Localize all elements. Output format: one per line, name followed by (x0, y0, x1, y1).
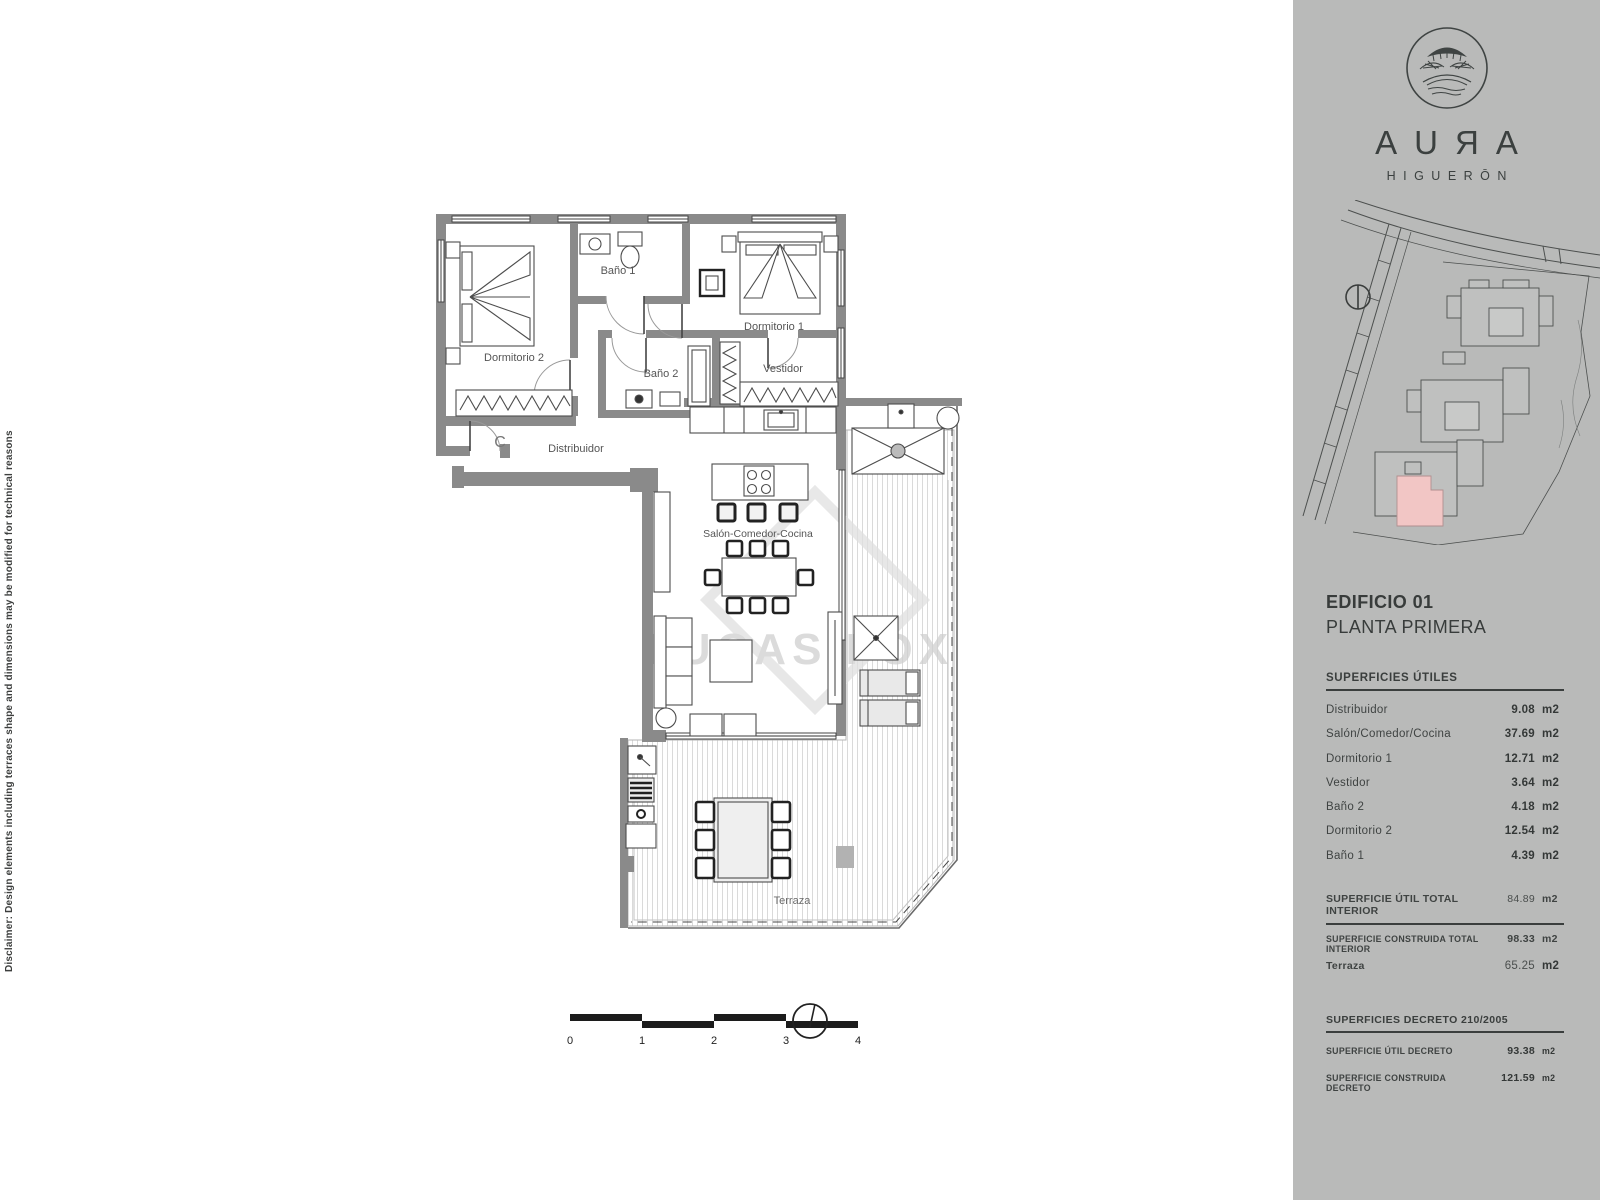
surface-row-unit: m2 (1542, 728, 1564, 740)
decreto-row-label: SUPERFICIE CONSTRUIDA DECRETO (1326, 1073, 1489, 1093)
total-label: SUPERFICIE CONSTRUIDA TOTAL INTERIOR (1326, 934, 1489, 954)
entrance-marker: C (494, 434, 506, 451)
scale-tick-4: 4 (855, 1035, 861, 1047)
sidebar: A U R A HIGUERŌN (1293, 0, 1600, 1200)
island-stools (718, 504, 797, 521)
surface-row-value: 4.39 (1489, 850, 1535, 862)
scale-tick-3: 3 (783, 1035, 789, 1047)
decreto-row-label: SUPERFICIE ÚTIL DECRETO (1326, 1046, 1489, 1056)
surface-row: Baño 2 4.18 m2 (1326, 801, 1564, 825)
room-label-dormitorio-1: Dormitorio 1 (744, 321, 804, 333)
building-title: EDIFICIO 01 (1326, 592, 1486, 613)
surface-row-label: Vestidor (1326, 777, 1489, 789)
room-label-bano-1: Baño 1 (601, 265, 636, 277)
surface-row-label: Baño 2 (1326, 801, 1489, 813)
disclaimer-text: Disclaimer: Design elements including te… (4, 322, 28, 972)
terrace-planter (836, 846, 854, 868)
scale-tick-0: 0 (567, 1035, 573, 1047)
room-label-vestidor: Vestidor (763, 363, 803, 375)
surfaces-table: SUPERFICIES ÚTILES Distribuidor 9.08 m2 … (1326, 672, 1564, 874)
room-label-terraza: Terraza (774, 895, 812, 907)
hall-cupboard (654, 492, 670, 592)
surface-row-label: Dormitorio 2 (1326, 825, 1489, 837)
surface-row-value: 12.54 (1489, 825, 1535, 837)
wardrobe-dormitorio-2 (456, 390, 572, 416)
brand-letter: U (1414, 126, 1438, 159)
surface-row-label: Dormitorio 1 (1326, 753, 1489, 765)
terraza-value: 65.25 (1489, 960, 1535, 972)
decreto-row-value: 93.38 (1489, 1045, 1535, 1057)
kitchen-island (712, 464, 808, 500)
brand-wordmark: A U R A (1293, 126, 1600, 159)
surface-row-value: 9.08 (1489, 704, 1535, 716)
surface-row-value: 12.71 (1489, 753, 1535, 765)
bed-dormitorio-1 (722, 232, 838, 314)
total-built-row: SUPERFICIE CONSTRUIDA TOTAL INTERIOR 98.… (1326, 933, 1564, 954)
floor-title: PLANTA PRIMERA (1326, 617, 1486, 638)
outdoor-shower (854, 616, 898, 660)
total-label: SUPERFICIE ÚTIL TOTAL INTERIOR (1326, 893, 1489, 917)
outdoor-kitchen (626, 746, 656, 848)
room-label-salon: Salón-Comedor-Cocina (703, 528, 813, 540)
brand-logo: A U R A HIGUERŌN (1293, 24, 1600, 183)
sheet-title: EDIFICIO 01 PLANTA PRIMERA (1326, 592, 1486, 638)
logo-emblem-icon (1403, 24, 1491, 112)
decreto-rows: SUPERFICIE ÚTIL DECRETO 93.38 m2 SUPERFI… (1326, 1045, 1564, 1099)
brand-letter: A (1496, 126, 1518, 159)
surface-row-unit: m2 (1542, 704, 1564, 716)
dining-table (722, 558, 796, 596)
total-interior-row: SUPERFICIE ÚTIL TOTAL INTERIOR 84.89 m2 (1326, 893, 1564, 925)
totals-block: SUPERFICIE ÚTIL TOTAL INTERIOR 84.89 m2 … (1326, 893, 1564, 954)
kitchen-counter (690, 407, 836, 433)
bed-dormitorio-2 (446, 242, 534, 364)
total-value: 84.89 (1489, 893, 1535, 905)
brochure-page: { "colors": { "sidebar_bg": "#b9bab9", "… (0, 0, 1600, 1200)
north-indicator-icon (1346, 285, 1370, 309)
surface-row: Salón/Comedor/Cocina 37.69 m2 (1326, 728, 1564, 752)
surface-row-unit: m2 (1542, 825, 1564, 837)
brand-letter-mirrored-r: R (1455, 126, 1479, 159)
surface-row: Vestidor 3.64 m2 (1326, 777, 1564, 801)
surface-row: Dormitorio 1 12.71 m2 (1326, 753, 1564, 777)
site-plan (1293, 200, 1600, 545)
surface-row: Baño 1 4.39 m2 (1326, 850, 1564, 874)
terraza-label: Terraza (1326, 960, 1489, 972)
surface-row-unit: m2 (1542, 850, 1564, 862)
bathroom-1-fixtures (580, 232, 642, 268)
surface-row: Distribuidor 9.08 m2 (1326, 704, 1564, 728)
brand-letter: A (1375, 126, 1397, 159)
scale-tick-1: 1 (639, 1035, 645, 1047)
surface-row-value: 3.64 (1489, 777, 1535, 789)
total-unit: m2 (1542, 893, 1564, 905)
room-label-bano-2: Baño 2 (644, 368, 679, 380)
surface-row-unit: m2 (1542, 801, 1564, 813)
surface-row-label: Distribuidor (1326, 704, 1489, 716)
total-value: 98.33 (1489, 933, 1535, 945)
decreto-row-unit: m2 (1542, 1073, 1564, 1083)
decreto-row: SUPERFICIE CONSTRUIDA DECRETO 121.59 m2 (1326, 1072, 1564, 1099)
room-label-dormitorio-2: Dormitorio 2 (484, 352, 544, 364)
scale-bar: 0 1 2 3 4 (567, 1014, 861, 1047)
surface-row: Dormitorio 2 12.54 m2 (1326, 825, 1564, 849)
surface-row-value: 4.18 (1489, 801, 1535, 813)
tv-bench (828, 612, 842, 704)
surface-row-unit: m2 (1542, 753, 1564, 765)
terraza-row: Terraza 65.25 m2 (1326, 960, 1564, 972)
decreto-heading: SUPERFICIES DECRETO 210/2005 (1326, 1014, 1564, 1033)
decreto-row-unit: m2 (1542, 1046, 1564, 1056)
tv-unit-dormitorio-1 (700, 270, 724, 296)
surface-row-label: Salón/Comedor/Cocina (1326, 728, 1489, 740)
surface-row-unit: m2 (1542, 777, 1564, 789)
total-unit: m2 (1542, 933, 1564, 945)
terrace-table (714, 798, 772, 882)
pergola (852, 404, 959, 474)
brand-subtitle: HIGUERŌN (1293, 169, 1600, 183)
surface-row-label: Baño 1 (1326, 850, 1489, 862)
room-label-distribuidor: Distribuidor (548, 443, 604, 455)
decreto-row: SUPERFICIE ÚTIL DECRETO 93.38 m2 (1326, 1045, 1564, 1072)
surfaces-heading: SUPERFICIES ÚTILES (1326, 672, 1564, 691)
decreto-table: SUPERFICIES DECRETO 210/2005 SUPERFICIE … (1326, 1014, 1564, 1099)
coffee-table (710, 640, 752, 682)
surfaces-rows: Distribuidor 9.08 m2 Salón/Comedor/Cocin… (1326, 704, 1564, 874)
decreto-row-value: 121.59 (1489, 1072, 1535, 1084)
terraza-unit: m2 (1542, 960, 1564, 972)
scale-tick-2: 2 (711, 1035, 717, 1047)
surface-row-value: 37.69 (1489, 728, 1535, 740)
